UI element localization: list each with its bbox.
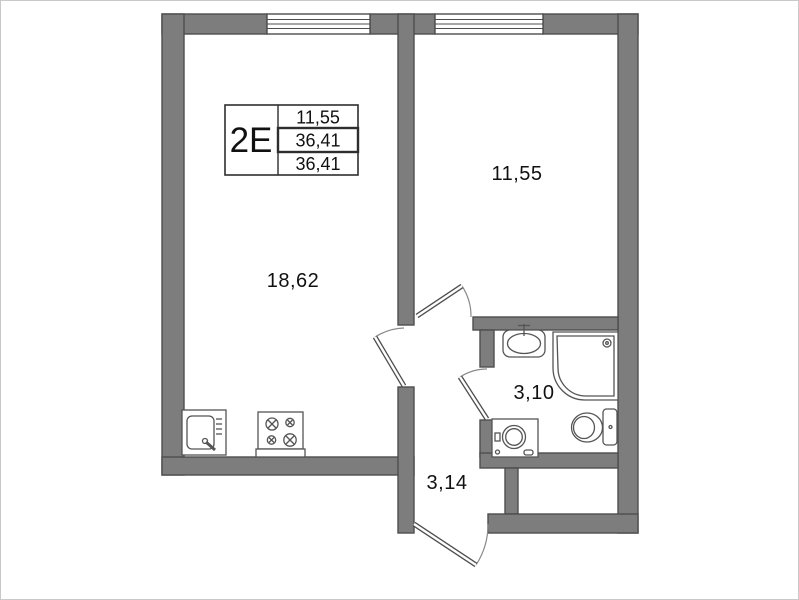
info-table-row-living-area: 11,55: [296, 108, 340, 128]
hallway-area-label: 3,14: [427, 472, 468, 494]
window-bedroom: [435, 14, 543, 34]
info-table-row-total-area-with-balcony: 36,41: [295, 154, 340, 174]
wall-segment: [488, 514, 638, 533]
wall-segment: [505, 468, 518, 514]
wall-segment: [618, 14, 638, 533]
shower-icon: [553, 332, 618, 400]
wall-segment: [162, 457, 414, 475]
bedroom-area-label: 11,55: [491, 163, 542, 185]
wall-segment: [162, 14, 184, 475]
wall-segment: [398, 387, 414, 533]
kitchen-sink-icon: [182, 410, 226, 455]
wall-segment: [398, 14, 414, 325]
floor-plan: 2E 11,55 36,41 36,41 18,62 11,55 3,10 3,…: [0, 0, 799, 600]
stove-icon: [256, 412, 305, 457]
living-kitchen-area-label: 18,62: [267, 270, 320, 292]
unit-info-table: 2E 11,55 36,41 36,41: [225, 105, 358, 175]
wall-segment: [473, 317, 618, 330]
wall-segment: [480, 330, 494, 367]
washing-machine-icon: [492, 419, 538, 457]
bathroom-area-label: 3,10: [514, 382, 555, 404]
window-living: [267, 14, 370, 34]
floor-plan-canvas: 2E 11,55 36,41 36,41 18,62 11,55 3,10 3,…: [0, 0, 799, 600]
unit-type-label: 2E: [230, 121, 273, 160]
info-table-row-total-area: 36,41: [295, 131, 340, 151]
